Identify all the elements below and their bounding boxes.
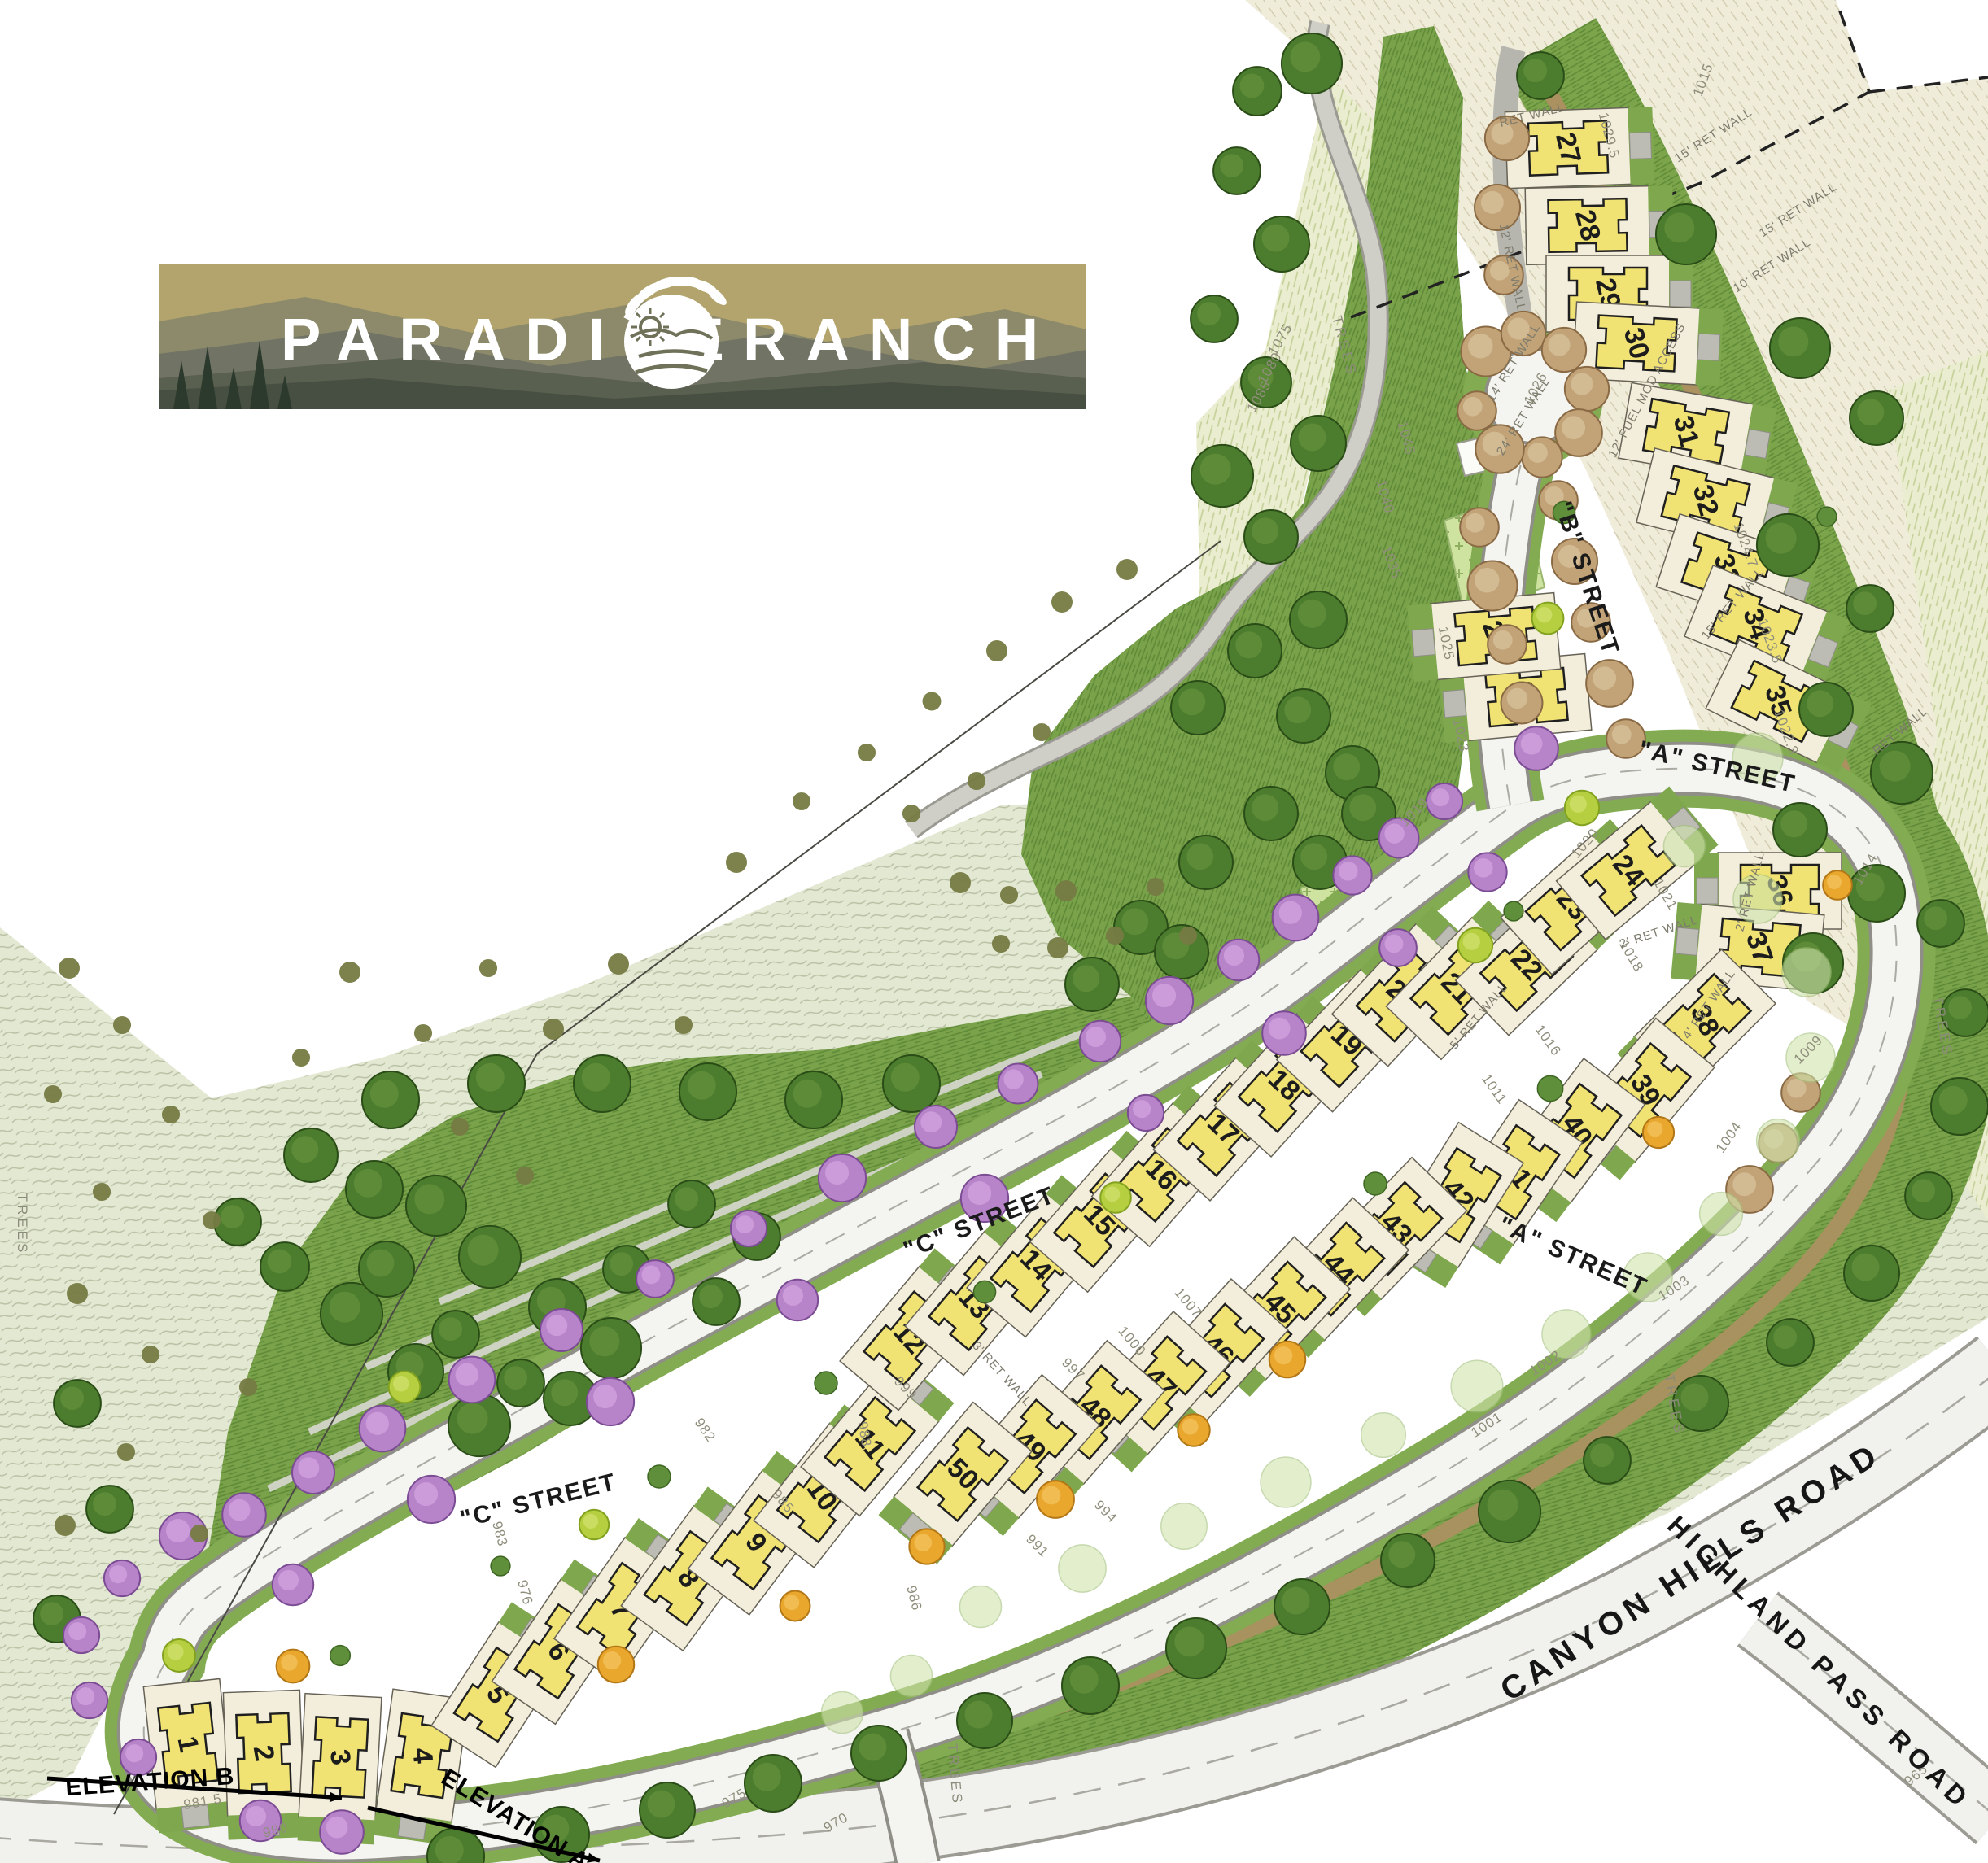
olive-tree-icon bbox=[142, 1346, 159, 1363]
lot-29-driveway bbox=[1670, 281, 1691, 307]
olive-tree-icon bbox=[992, 935, 1010, 953]
canopy-tree-icon bbox=[785, 1071, 842, 1128]
purple-tree-icon bbox=[1468, 853, 1506, 891]
purple-tree-icon bbox=[1333, 856, 1371, 894]
purple-tree-icon bbox=[1146, 977, 1193, 1024]
canopy-tree-icon bbox=[1770, 318, 1830, 378]
site-plan-page: 1234567891011121314151617181920212223242… bbox=[0, 0, 1988, 1863]
canopy-tree-icon bbox=[1282, 33, 1342, 94]
olive-tree-icon bbox=[793, 792, 810, 810]
lightgreen-tree-icon bbox=[1782, 948, 1831, 997]
canopy-tree-icon bbox=[214, 1198, 261, 1246]
olive-tree-icon bbox=[113, 1016, 131, 1034]
lightgreen-tree-icon bbox=[1664, 826, 1706, 867]
olive-tree-icon bbox=[1047, 937, 1068, 958]
olive-tree-icon bbox=[190, 1525, 208, 1542]
purple-tree-icon bbox=[104, 1560, 140, 1596]
bush-tree-icon bbox=[1504, 901, 1523, 921]
canopy-tree-icon bbox=[1290, 591, 1347, 648]
accent-tree-icon bbox=[277, 1650, 310, 1683]
logo-banner: PARADISE RANCH bbox=[159, 264, 1086, 409]
olive-tree-icon bbox=[1000, 886, 1018, 904]
canopy-tree-icon bbox=[1479, 1481, 1540, 1542]
purple-tree-icon bbox=[292, 1451, 334, 1494]
bush-tree-icon bbox=[1364, 1172, 1387, 1195]
yellowgreen-tree-icon bbox=[1565, 791, 1599, 825]
olive-tree-icon bbox=[675, 1016, 693, 1034]
lot-28: 28 bbox=[1525, 185, 1674, 264]
purple-tree-icon bbox=[360, 1406, 406, 1452]
lot-26-driveway bbox=[1412, 629, 1435, 657]
canopy-tree-icon bbox=[1062, 1657, 1119, 1714]
olive-tree-icon bbox=[479, 959, 497, 977]
purple-tree-icon bbox=[222, 1493, 266, 1537]
tan-tree-icon bbox=[1501, 683, 1543, 724]
purple-tree-icon bbox=[408, 1476, 455, 1523]
canopy-tree-icon bbox=[1244, 510, 1298, 564]
tan-tree-icon bbox=[1565, 367, 1609, 411]
canopy-tree-icon bbox=[1277, 689, 1330, 743]
tan-tree-icon bbox=[1522, 437, 1562, 477]
purple-tree-icon bbox=[1262, 1011, 1306, 1055]
olive-tree-icon bbox=[1179, 927, 1197, 945]
canopy-tree-icon bbox=[346, 1161, 403, 1218]
olive-tree-icon bbox=[67, 1283, 88, 1304]
canopy-tree-icon bbox=[459, 1226, 521, 1288]
lightgreen-tree-icon bbox=[1161, 1503, 1207, 1549]
tan-tree-icon bbox=[1460, 508, 1499, 547]
olive-tree-icon bbox=[950, 872, 971, 893]
purple-tree-icon bbox=[998, 1064, 1038, 1104]
lightgreen-tree-icon bbox=[1261, 1457, 1311, 1507]
purple-tree-icon bbox=[819, 1154, 866, 1202]
canopy-tree-icon bbox=[1767, 1319, 1814, 1366]
lightgreen-tree-icon bbox=[891, 1656, 933, 1697]
canopy-tree-icon bbox=[1850, 391, 1903, 445]
purple-tree-icon bbox=[636, 1260, 674, 1298]
purple-tree-icon bbox=[1379, 929, 1417, 966]
yellowgreen-tree-icon bbox=[1458, 928, 1492, 962]
olive-tree-icon bbox=[726, 852, 747, 873]
bush-tree-icon bbox=[1537, 1075, 1562, 1101]
lot-31-driveway bbox=[1745, 429, 1770, 458]
canopy-tree-icon bbox=[406, 1176, 466, 1236]
olive-tree-icon bbox=[543, 1019, 564, 1040]
purple-tree-icon bbox=[915, 1106, 957, 1148]
bush-tree-icon bbox=[648, 1465, 671, 1488]
canopy-tree-icon bbox=[1191, 445, 1253, 507]
tan-tree-icon bbox=[1542, 328, 1586, 372]
olive-tree-icon bbox=[1116, 559, 1138, 580]
olive-tree-icon bbox=[55, 1515, 76, 1536]
canopy-tree-icon bbox=[468, 1055, 525, 1112]
olive-tree-icon bbox=[1055, 880, 1077, 901]
olive-tree-icon bbox=[59, 958, 80, 979]
canopy-tree-icon bbox=[883, 1055, 940, 1112]
tan-tree-icon bbox=[1555, 409, 1602, 456]
olive-tree-icon bbox=[902, 805, 920, 822]
olive-tree-icon bbox=[923, 692, 942, 711]
accent-tree-icon bbox=[780, 1591, 810, 1621]
lot-27-driveway bbox=[1629, 132, 1651, 159]
olive-tree-icon bbox=[203, 1211, 221, 1229]
lightgreen-tree-icon bbox=[1451, 1360, 1503, 1412]
olive-tree-icon bbox=[1033, 723, 1051, 741]
lightgreen-tree-icon bbox=[822, 1692, 863, 1734]
canopy-tree-icon bbox=[1274, 1579, 1330, 1634]
canopy-tree-icon bbox=[1517, 52, 1564, 99]
purple-tree-icon bbox=[320, 1810, 364, 1854]
canopy-tree-icon bbox=[851, 1726, 907, 1781]
canopy-tree-icon bbox=[1166, 1618, 1226, 1678]
olive-tree-icon bbox=[858, 744, 876, 761]
tan-tree-icon bbox=[1467, 561, 1517, 610]
canopy-tree-icon bbox=[1213, 147, 1261, 194]
lot-25-driveway bbox=[1443, 690, 1466, 718]
olive-tree-icon bbox=[339, 962, 360, 983]
bush-tree-icon bbox=[1817, 507, 1837, 526]
purple-tree-icon bbox=[777, 1280, 818, 1320]
lightgreen-tree-icon bbox=[960, 1586, 1002, 1628]
olive-tree-icon bbox=[1106, 927, 1124, 945]
canopy-tree-icon bbox=[1291, 416, 1346, 471]
canopy-tree-icon bbox=[260, 1242, 309, 1291]
canopy-tree-icon bbox=[86, 1486, 133, 1533]
canopy-tree-icon bbox=[1179, 836, 1233, 889]
trees-area-label-0: TREES bbox=[15, 1193, 30, 1256]
canopy-tree-icon bbox=[54, 1380, 101, 1427]
canopy-tree-icon bbox=[1844, 1246, 1899, 1301]
olive-tree-icon bbox=[1051, 591, 1073, 613]
purple-tree-icon bbox=[1514, 726, 1558, 770]
olive-tree-icon bbox=[608, 953, 629, 975]
lightgreen-tree-icon bbox=[1700, 1193, 1743, 1236]
canopy-tree-icon bbox=[745, 1755, 802, 1812]
olive-tree-icon bbox=[516, 1167, 534, 1185]
bush-tree-icon bbox=[973, 1281, 995, 1302]
canopy-tree-icon bbox=[1233, 67, 1282, 116]
olive-tree-icon bbox=[292, 1049, 310, 1067]
olive-tree-icon bbox=[93, 1183, 111, 1201]
canopy-tree-icon bbox=[497, 1359, 544, 1407]
tan-tree-icon bbox=[1586, 660, 1633, 707]
paradise-ranch-site-plan: 1234567891011121314151617181920212223242… bbox=[0, 0, 1988, 1863]
accent-tree-icon bbox=[1643, 1117, 1674, 1148]
accent-tree-icon bbox=[1823, 870, 1852, 900]
purple-tree-icon bbox=[587, 1378, 634, 1425]
canopy-tree-icon bbox=[1656, 204, 1716, 264]
lot-4-number: 4 bbox=[406, 1747, 439, 1765]
accent-tree-icon bbox=[1178, 1414, 1209, 1446]
yellowgreen-tree-icon bbox=[389, 1372, 421, 1403]
canopy-tree-icon bbox=[581, 1318, 641, 1378]
accent-tree-icon bbox=[1037, 1481, 1074, 1518]
canopy-tree-icon bbox=[1931, 1078, 1988, 1135]
olive-tree-icon bbox=[451, 1118, 469, 1136]
purple-tree-icon bbox=[540, 1309, 583, 1351]
olive-tree-icon bbox=[1147, 878, 1164, 896]
olive-tree-icon bbox=[414, 1024, 432, 1042]
canopy-tree-icon bbox=[1773, 803, 1827, 857]
purple-tree-icon bbox=[1273, 895, 1319, 941]
purple-tree-icon bbox=[63, 1617, 99, 1653]
canopy-tree-icon bbox=[432, 1311, 479, 1358]
canopy-tree-icon bbox=[1905, 1172, 1952, 1219]
canopy-tree-icon bbox=[284, 1128, 338, 1182]
yellowgreen-tree-icon bbox=[163, 1639, 195, 1672]
accent-tree-icon bbox=[598, 1647, 635, 1683]
olive-tree-icon bbox=[44, 1085, 62, 1103]
olive-tree-icon bbox=[968, 772, 985, 790]
purple-tree-icon bbox=[449, 1357, 496, 1403]
tan-tree-icon bbox=[1475, 185, 1520, 230]
yellowgreen-tree-icon bbox=[1100, 1182, 1131, 1213]
lightgreen-tree-icon bbox=[1361, 1413, 1406, 1458]
olive-tree-icon bbox=[986, 640, 1007, 661]
accent-tree-icon bbox=[1269, 1342, 1306, 1378]
canopy-tree-icon bbox=[448, 1394, 510, 1456]
canopy-tree-icon bbox=[1584, 1437, 1631, 1484]
lot-36-driveway bbox=[1697, 878, 1718, 904]
purple-tree-icon bbox=[273, 1564, 313, 1605]
purple-tree-icon bbox=[1128, 1095, 1164, 1131]
canopy-tree-icon bbox=[362, 1071, 419, 1128]
purple-tree-icon bbox=[1218, 940, 1259, 980]
canopy-tree-icon bbox=[640, 1782, 695, 1838]
lightgreen-tree-icon bbox=[1757, 1119, 1800, 1163]
canopy-tree-icon bbox=[693, 1278, 740, 1325]
purple-tree-icon bbox=[731, 1211, 767, 1246]
yellowgreen-tree-icon bbox=[579, 1510, 609, 1539]
olive-tree-icon bbox=[162, 1106, 180, 1123]
canopy-tree-icon bbox=[1917, 900, 1964, 947]
canopy-tree-icon bbox=[1846, 585, 1894, 632]
tan-tree-icon bbox=[1488, 625, 1527, 664]
canopy-tree-icon bbox=[1228, 624, 1282, 678]
canopy-tree-icon bbox=[1065, 958, 1119, 1011]
canopy-tree-icon bbox=[1381, 1534, 1435, 1587]
canopy-tree-icon bbox=[668, 1180, 715, 1228]
purple-tree-icon bbox=[1427, 783, 1462, 819]
canopy-tree-icon bbox=[1191, 295, 1238, 342]
lightgreen-tree-icon bbox=[1059, 1545, 1106, 1592]
bush-tree-icon bbox=[491, 1556, 510, 1576]
bush-tree-icon bbox=[815, 1372, 837, 1394]
logo-text-ranch: RANCH bbox=[743, 306, 1058, 373]
accent-tree-icon bbox=[909, 1529, 944, 1564]
canopy-tree-icon bbox=[1171, 681, 1225, 735]
canopy-tree-icon bbox=[359, 1241, 414, 1297]
canopy-tree-icon bbox=[957, 1693, 1012, 1748]
canopy-tree-icon bbox=[574, 1055, 631, 1112]
canopy-tree-icon bbox=[1244, 787, 1298, 840]
canopy-tree-icon bbox=[1757, 514, 1819, 576]
olive-tree-icon bbox=[117, 1443, 135, 1461]
purple-tree-icon bbox=[1080, 1021, 1121, 1062]
canopy-tree-icon bbox=[679, 1063, 736, 1120]
purple-tree-icon bbox=[72, 1682, 107, 1718]
olive-tree-icon bbox=[239, 1378, 257, 1396]
lot-30-driveway bbox=[1697, 334, 1720, 360]
yellowgreen-tree-icon bbox=[1532, 603, 1564, 635]
canopy-tree-icon bbox=[1254, 216, 1309, 272]
bush-tree-icon bbox=[330, 1646, 351, 1666]
canopy-tree-icon bbox=[1799, 683, 1853, 736]
